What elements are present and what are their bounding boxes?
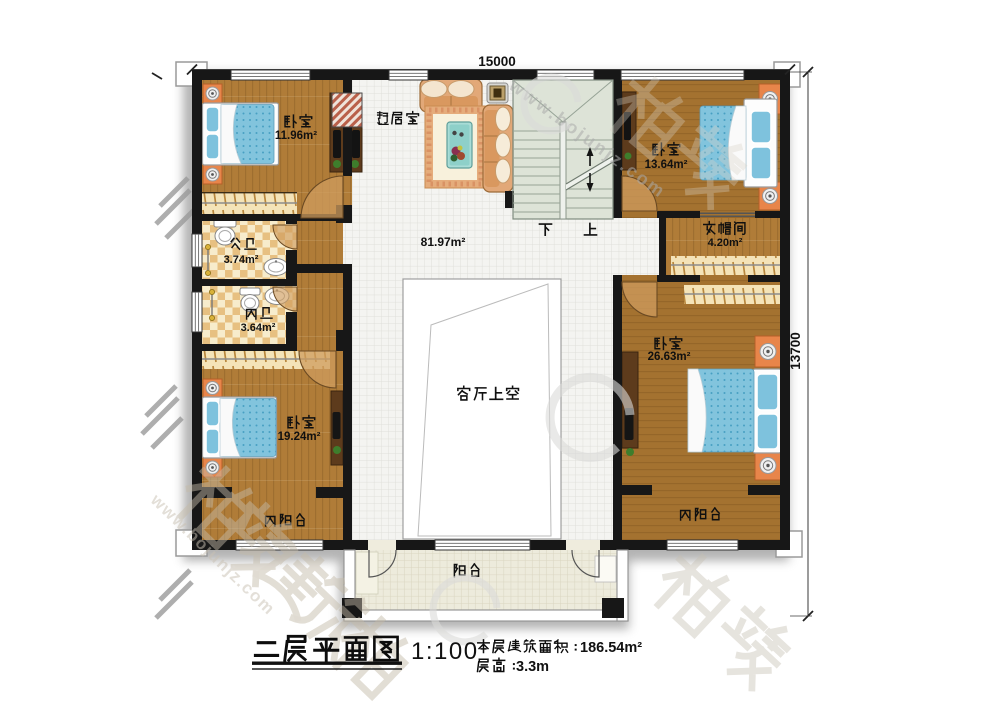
svg-text:81.97m²: 81.97m²	[421, 235, 466, 249]
svg-text:13700: 13700	[788, 332, 803, 370]
svg-text:26.63m²: 26.63m²	[648, 351, 691, 363]
svg-text:3.74m²: 3.74m²	[224, 254, 259, 266]
svg-text:3.3m: 3.3m	[516, 659, 549, 675]
svg-text:1:100: 1:100	[411, 638, 479, 665]
svg-text:19.24m²: 19.24m²	[278, 431, 321, 443]
svg-text:11.96m²: 11.96m²	[275, 130, 317, 142]
svg-text:4.20m²: 4.20m²	[708, 237, 743, 249]
svg-text:15000: 15000	[478, 54, 516, 69]
svg-text:3.64m²: 3.64m²	[241, 322, 276, 334]
svg-text:186.54m²: 186.54m²	[580, 640, 642, 656]
